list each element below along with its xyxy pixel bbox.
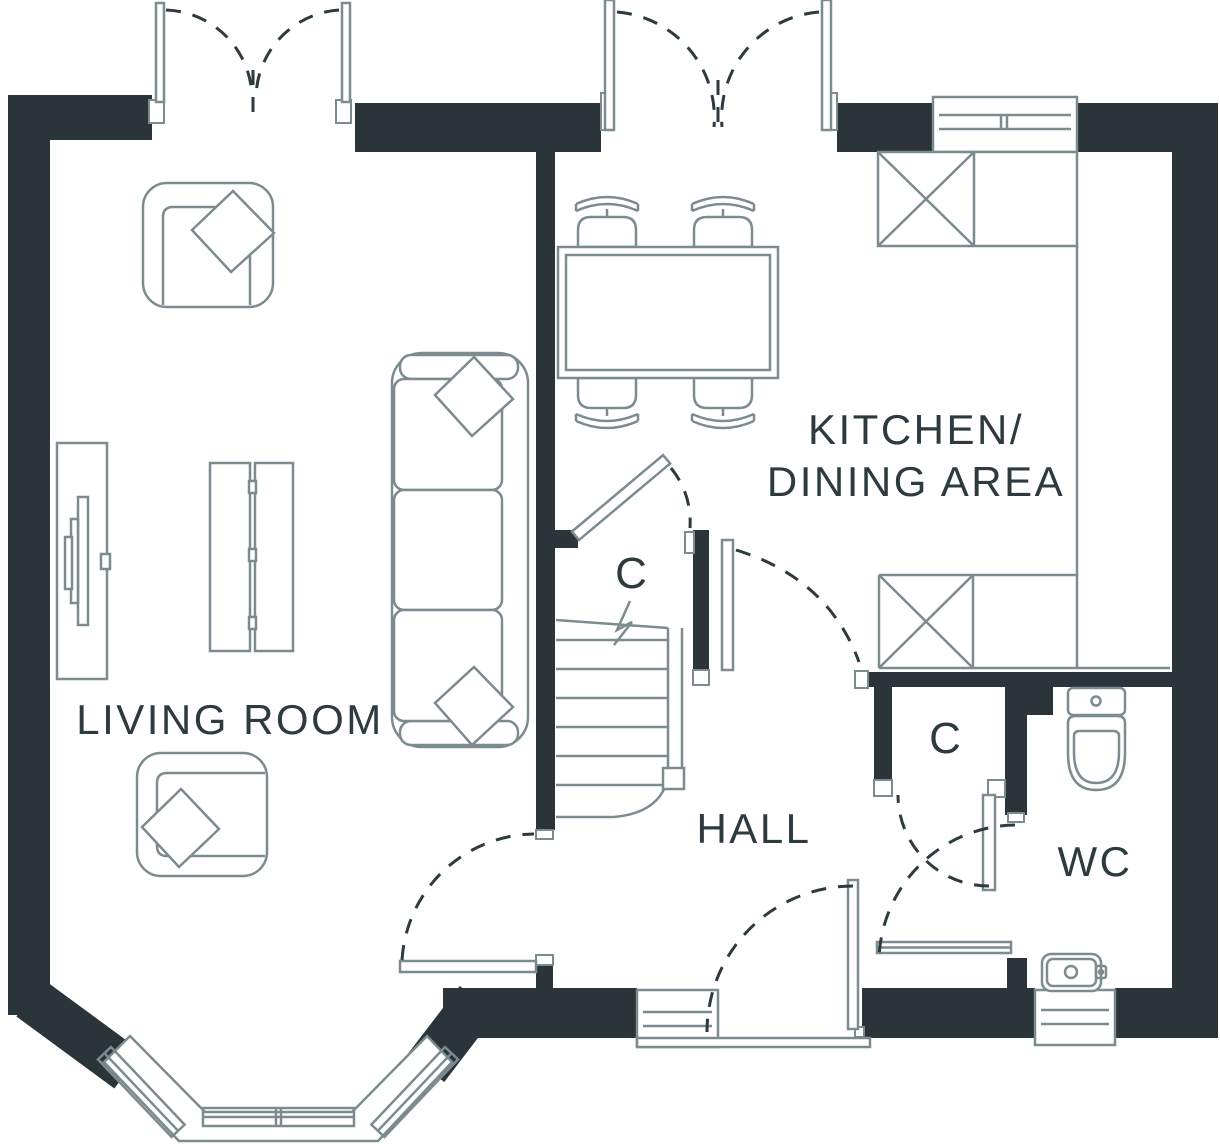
living-room-label: LIVING ROOM bbox=[76, 696, 384, 743]
front-door-threshold bbox=[637, 1038, 870, 1047]
radiator bbox=[877, 942, 1011, 953]
kitchen-label-line2: DINING AREA bbox=[767, 458, 1065, 505]
front-door bbox=[707, 880, 858, 1032]
dining-table bbox=[558, 197, 778, 428]
appliance-x-bottom bbox=[879, 575, 973, 668]
kitchen-window bbox=[933, 97, 1077, 152]
dining-chair bbox=[576, 378, 638, 428]
french-doors-living-room bbox=[156, 3, 350, 112]
newel-post bbox=[663, 768, 684, 789]
dining-chair bbox=[692, 378, 754, 428]
bay-window bbox=[98, 1036, 458, 1141]
washbasin bbox=[1042, 954, 1106, 991]
french-doors-kitchen bbox=[605, 0, 831, 130]
dining-chair bbox=[692, 197, 754, 247]
understairs-cupboard-door bbox=[572, 455, 690, 540]
hall-label: HALL bbox=[696, 805, 811, 852]
wc-window bbox=[1035, 990, 1115, 1045]
dining-chair bbox=[576, 197, 638, 247]
wc-door bbox=[879, 795, 1015, 959]
kitchen-door bbox=[722, 540, 859, 670]
tv-unit bbox=[57, 443, 110, 679]
coffee-table bbox=[210, 463, 293, 651]
armchair-bottom bbox=[137, 753, 267, 876]
floor-plan: LIVING ROOM KITCHEN/ DINING AREA HALL WC… bbox=[0, 0, 1220, 1147]
living-room-door bbox=[400, 834, 536, 972]
understairs-cupboard-label: C bbox=[615, 549, 647, 598]
sofa bbox=[392, 353, 528, 747]
kitchen-label-line1: KITCHEN/ bbox=[808, 406, 1024, 453]
staircase bbox=[556, 601, 684, 817]
wc-label: WC bbox=[1058, 838, 1133, 885]
toilet bbox=[1068, 688, 1125, 790]
armchair-top bbox=[143, 183, 274, 307]
hall-cupboard-label: C bbox=[929, 714, 961, 763]
